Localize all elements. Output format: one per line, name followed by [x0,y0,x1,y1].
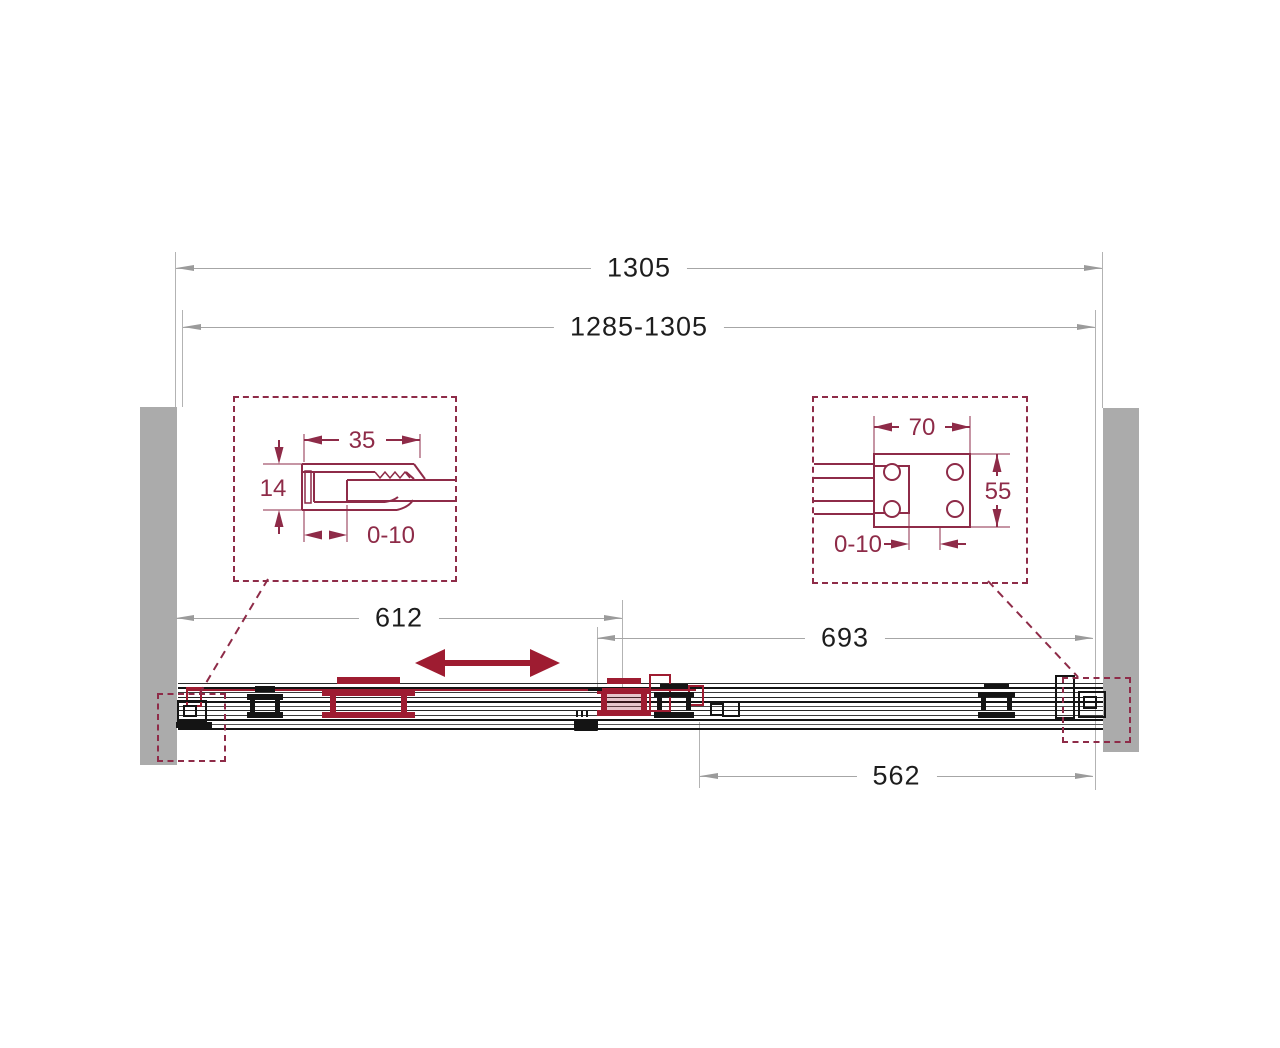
dim-arrowhead [891,540,909,549]
dimension-range: 1285-1305 [183,327,1095,328]
roller-carriage [978,684,1015,718]
glass-panel [347,480,455,501]
bracket-hole [884,501,900,517]
dimension-overall-label: 1305 [591,252,687,283]
detail-box-wall-profile: 35 14 0-10 [233,396,457,582]
extension-line-right-outer [1102,252,1103,408]
dim-arrowhead [304,436,322,445]
roller-carriage-red [597,678,651,718]
callout-box-left-small [157,693,226,762]
dim-arrow-right [1075,773,1093,779]
detail-dim-70: 70 [909,414,936,441]
detail-dim-0-10: 0-10 [367,522,415,549]
dim-arrow-right [1075,635,1093,641]
dim-arrow-right [1077,324,1095,330]
dim-arrowhead [993,509,1002,527]
rail-line [178,719,1103,721]
bracket-rails [814,464,874,514]
detail-box-bracket: 70 55 0-10 [812,396,1028,584]
detail-dim-55: 55 [985,478,1012,505]
roller-carriage-red [322,677,415,718]
anchor-tick [586,711,588,717]
profile-web-hollow [305,471,311,503]
dim-arrow-right [604,615,622,621]
dimension-right-opening-label: 693 [805,622,885,653]
dim-arrowhead [952,423,970,432]
profile-bottom-flange [302,497,413,510]
extension-line-left-outer [175,252,176,407]
arrow-shaft [441,660,534,666]
dim-arrowhead [402,436,420,445]
anchor-tick [576,711,578,717]
leader-line-right [988,581,1078,677]
dim-arrow-left [183,324,201,330]
dimension-left-opening-label: 612 [359,602,439,633]
arrow-head-right [530,649,560,677]
roller-carriage [247,686,283,720]
track-clip [588,687,602,691]
dim-arrowhead [874,423,892,432]
dim-arrow-left [700,773,718,779]
extension-line-612-right [622,600,623,690]
detail-dim-0-10: 0-10 [834,531,882,558]
roller-carriage [654,684,694,718]
leader-line-left [200,579,268,693]
dim-arrowhead [304,531,322,540]
dimension-fixed-panel: 562 [700,776,1093,777]
profile-top-flange [302,464,414,510]
rail-line [178,728,1103,730]
dim-arrowhead [275,510,284,527]
dim-arrowhead [329,531,347,540]
detail-dim-35: 35 [349,427,376,454]
dimension-overall: 1305 [176,268,1102,269]
detail-dim-14: 14 [260,475,287,502]
technical-drawing-canvas: 1305 1285-1305 612 693 562 [0,0,1280,1048]
bracket-hole [947,501,963,517]
leader-lines-overlay [0,0,1280,1048]
dimension-fixed-panel-label: 562 [856,760,936,791]
anchor-tick [581,711,583,717]
callout-box-right-small [1062,677,1131,743]
dim-arrowhead [275,447,284,464]
rail-line [178,724,1103,725]
dim-arrow-left [176,615,194,621]
bracket-hole [947,464,963,480]
dim-arrowhead [940,540,958,549]
wall-profile-detail-drawing: 35 14 0-10 [235,398,455,580]
guide-block [722,701,740,717]
dim-arrow-left [597,635,615,641]
dimension-right-opening: 693 [597,638,1093,639]
bracket-detail-drawing: 70 55 0-10 [814,398,1026,582]
dimension-left-opening: 612 [176,618,622,619]
dim-arrowhead [993,454,1002,472]
dim-arrow-right [1084,265,1102,271]
dim-arrow-left [176,265,194,271]
profile-serration [375,472,410,478]
floor-anchor [574,719,598,731]
bracket-hole [884,464,900,480]
dimension-range-label: 1285-1305 [554,311,724,342]
slide-direction-arrow-icon [415,649,560,677]
